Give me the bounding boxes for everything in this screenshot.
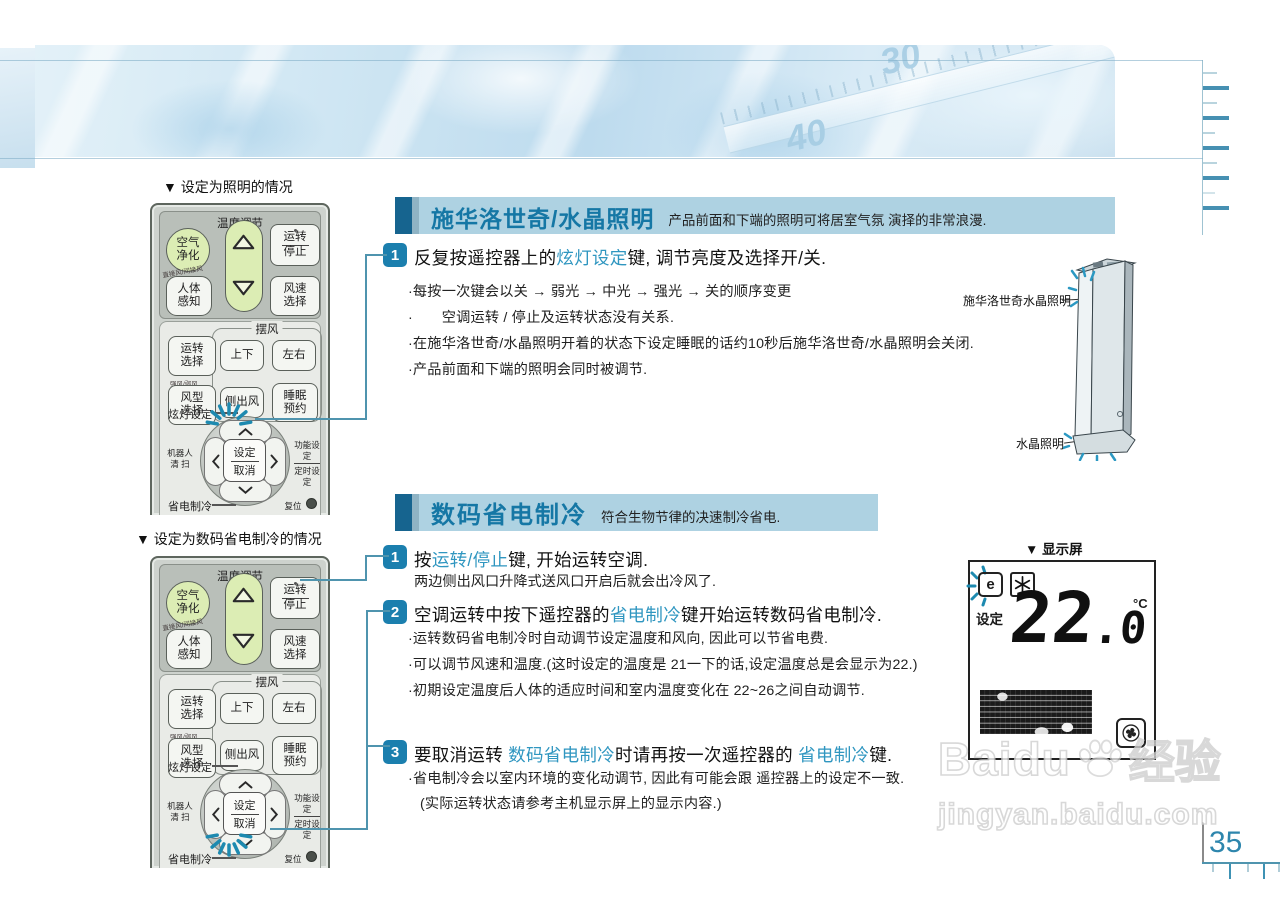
fan-speed-button: 风速选择: [270, 276, 320, 316]
energy-icon: e: [978, 572, 1003, 597]
callout-line: [366, 610, 390, 612]
robot-clean-label: 机器人 清 扫: [162, 801, 198, 822]
temp-updown-control: [225, 220, 263, 312]
set-label: 设定: [976, 608, 1003, 628]
callout-line: [366, 745, 390, 747]
temp-integer: 22: [1007, 590, 1096, 647]
header-block: [395, 197, 412, 234]
section2-header: 数码省电制冷 符合生物节律的决速制冷省电.: [419, 494, 878, 531]
sleep-reserve-button: 睡眠预约: [272, 736, 318, 775]
section2-step1-text: 按运转/停止键, 开始运转空调.: [414, 547, 648, 572]
leftright-swing-button: 左右: [272, 693, 316, 724]
callout-line: [365, 555, 389, 557]
bullet: ·每按一次键会以关 → 弱光 → 中光 → 强光 → 关的顺序变更: [408, 281, 791, 301]
power-led-dot: [294, 229, 297, 232]
bullet: ·产品前面和下端的照明会同时被调节.: [408, 359, 647, 379]
page-ruler-tick: [1247, 864, 1249, 872]
set-cancel-button: 设定取消: [223, 439, 266, 482]
func-timer-label: 功能设定 定时设定: [292, 793, 322, 841]
reset-button: [306, 851, 317, 862]
ruler-tick: [1203, 192, 1215, 194]
chevron-left-icon: [211, 454, 220, 469]
paw-icon: [1075, 734, 1125, 784]
reset-label: 复位: [282, 854, 304, 865]
caption-savecool-case: ▼ 设定为数码省电制冷的情况: [136, 529, 322, 549]
header-strip: [412, 197, 419, 234]
watermark-brand: Baidu: [938, 732, 1071, 786]
run-select-button: 运转选择: [168, 336, 216, 376]
remote-control-illustration: 温度调节 空气净化 运转停止 直接风/间接风 人体感知 风速选择 摆风 运转选择…: [150, 203, 330, 515]
watermark-url: jingyan.baidu.com: [938, 798, 1221, 832]
callout-line: [270, 828, 368, 830]
bullet: ·初期设定温度后人体的适应时间和室内温度变化在 22~26之间自动调节.: [408, 680, 865, 700]
ac-tower-illustration: [1063, 246, 1148, 461]
ruler-tick: [1203, 116, 1229, 120]
temp-dot: .: [1092, 611, 1122, 647]
func-timer-label: 功能设定 定时设定: [292, 440, 322, 488]
updown-swing-button: 上下: [220, 340, 264, 371]
dpad-down-button: [219, 479, 272, 502]
header-strip: [412, 494, 419, 531]
rule-line-bottom: [0, 158, 1203, 159]
save-cool-lead-line: [212, 504, 236, 506]
body-sense-button: 人体感知: [166, 629, 212, 669]
power-led-dot: [294, 582, 297, 585]
updown-swing-button: 上下: [220, 693, 264, 724]
remote-slot-2: 温度调节 空气净化 运转停止 直接风/间接风 人体感知 风速选择 摆风 运转选择…: [150, 556, 330, 868]
temperature-readout: 22 . 0: [1007, 590, 1149, 647]
section2-step2-text: 空调运转中按下遥控器的省电制冷键开始运转数码省电制冷.: [414, 602, 882, 627]
callout-line: [300, 579, 367, 581]
step-badge-3: 3: [383, 740, 407, 764]
highlight-burst-icon: [191, 392, 267, 426]
temp-down-icon: [232, 632, 255, 650]
section1-title: 施华洛世奇/水晶照明: [431, 208, 654, 231]
display-caption: ▼ 显示屏: [1025, 538, 1083, 558]
section2-title: 数码省电制冷: [431, 504, 587, 528]
page-ruler-tick: [1263, 864, 1265, 879]
run-select-button: 运转选择: [168, 689, 216, 729]
temp-down-icon: [232, 279, 255, 297]
section1-step1-text: 反复按遥控器上的炫灯设定键, 调节亮度及选择开/关.: [414, 245, 826, 270]
chevron-up-icon: [238, 780, 253, 789]
bullet: (实际运转状态请参考主机显示屏上的显示内容.): [420, 793, 722, 813]
run-stop-button: 运转停止: [270, 577, 320, 619]
page-ruler-tick: [1229, 864, 1231, 879]
watermark-brand-cn: 经验: [1129, 726, 1221, 792]
bullet: ·在施华洛世奇/水晶照明开着的状态下设定睡眠的话约10秒后施华洛世奇/水晶照明会…: [408, 333, 974, 353]
ruler-tick: [1203, 132, 1215, 134]
save-cool-label: 省电制冷: [168, 498, 212, 514]
chevron-left-icon: [211, 807, 220, 822]
section1-subtitle: 产品前面和下端的照明可将居室气氛 演择的非常浪漫.: [668, 213, 986, 231]
remote-slot-1: 温度调节 空气净化 运转停止 直接风/间接风 人体感知 风速选择 摆风 运转选择…: [150, 203, 330, 515]
remote-mid-panel: 摆风 运转选择 上下 左右 强风/弱风 风型选择 侧出风 睡眠预约 炫灯设定: [159, 674, 321, 868]
remote-top-panel: 温度调节 空气净化 运转停止 直接风/间接风 人体感知 风速选择: [159, 564, 321, 672]
thermometer-illustration: 30 40 °C: [713, 45, 1115, 157]
section2-step1-subline: 两边侧出风口升降式送风口开启后就会出冷风了.: [414, 571, 716, 591]
callout-line: [365, 555, 367, 581]
ruler-tick: [1203, 86, 1229, 90]
temp-decimal: 0: [1118, 611, 1148, 647]
page-ruler-tick: [1212, 864, 1214, 872]
rule-line-top: [0, 60, 1203, 61]
chevron-right-icon: [270, 454, 279, 469]
callout-line: [365, 254, 367, 420]
chevron-right-icon: [270, 807, 279, 822]
reset-label: 复位: [282, 501, 304, 512]
ruler-tick: [1203, 102, 1217, 104]
watermark: Baidu 经验 jingyan.baidu.com: [938, 726, 1221, 832]
temp-updown-control: [225, 573, 263, 665]
bullet: ·运转数码省电制冷时自动调节设定温度和风向, 因此可以节省电费.: [408, 628, 828, 648]
remote-top-panel: 温度调节 空气净化 运转停止 直接风/间接风 人体感知 风速选择: [159, 211, 321, 319]
step-badge-1: 1: [383, 545, 407, 569]
highlight-burst-icon: [191, 833, 267, 867]
light-set-lead-line: [212, 765, 238, 767]
run-stop-button: 运转停止: [270, 224, 320, 266]
bullet: · 空调运转 / 停止及运转状态没有关系.: [408, 307, 674, 327]
banner-left-strip: [0, 48, 35, 168]
caption-lighting-case: ▼ 设定为照明的情况: [163, 177, 293, 197]
manual-page: 30 40 °C ▼ 设定为照明的情况 温度调节 空气净化 运转停止 直接风/间…: [0, 0, 1280, 901]
section1-header: 施华洛世奇/水晶照明 产品前面和下端的照明可将居室气氛 演择的非常浪漫.: [419, 197, 1115, 234]
sleep-reserve-button: 睡眠预约: [272, 383, 318, 422]
ruler-tick: [1203, 176, 1229, 180]
reset-button: [306, 498, 317, 509]
dpad-right-button: [263, 437, 286, 486]
banner-photo: 30 40 °C: [35, 45, 1115, 157]
robot-clean-label: 机器人 清 扫: [162, 448, 198, 469]
chevron-down-icon: [238, 486, 253, 495]
swing-label: 摆风: [252, 321, 283, 337]
section2-step3-text: 要取消运转 数码省电制冷时请再按一次遥控器的 省电制冷键.: [414, 742, 892, 767]
set-cancel-button: 设定取消: [223, 792, 266, 835]
tower-label-bottom: 水晶照明: [1016, 435, 1064, 452]
section2-subtitle: 符合生物节律的决速制冷省电.: [601, 510, 780, 528]
leftright-swing-button: 左右: [272, 340, 316, 371]
ruler-tick: [1203, 206, 1229, 210]
fan-speed-button: 风速选择: [270, 629, 320, 669]
step-badge-2: 2: [383, 600, 407, 624]
temp-up-icon: [232, 233, 255, 251]
header-block: [395, 494, 412, 531]
ruler-tick: [1203, 72, 1217, 74]
callout-line: [365, 254, 387, 256]
temp-up-icon: [232, 586, 255, 604]
dpad-right-button: [263, 790, 286, 839]
tower-label-top: 施华洛世奇水晶照明: [963, 292, 1071, 309]
dpad: 设定取消: [200, 416, 290, 506]
callout-line: [255, 418, 367, 420]
bullet: ·可以调节风速和温度.(这时设定的温度是 21一下的话,设定温度总是会显示为22…: [408, 654, 918, 674]
light-set-label: 炫灯设定: [168, 759, 212, 775]
body-sense-button: 人体感知: [166, 276, 212, 316]
swing-label: 摆风: [252, 674, 283, 690]
bullet: ·省电制冷会以室内环境的变化动调节, 因此有可能会跟 遥控器上的设定不一致.: [408, 768, 904, 788]
callout-line: [366, 610, 368, 830]
chevron-up-icon: [238, 427, 253, 436]
remote-control-illustration: 温度调节 空气净化 运转停止 直接风/间接风 人体感知 风速选择 摆风 运转选择…: [150, 556, 330, 868]
temp-unit: °C: [1133, 596, 1148, 611]
ruler-tick: [1203, 146, 1229, 150]
ruler-tick: [1203, 162, 1217, 164]
